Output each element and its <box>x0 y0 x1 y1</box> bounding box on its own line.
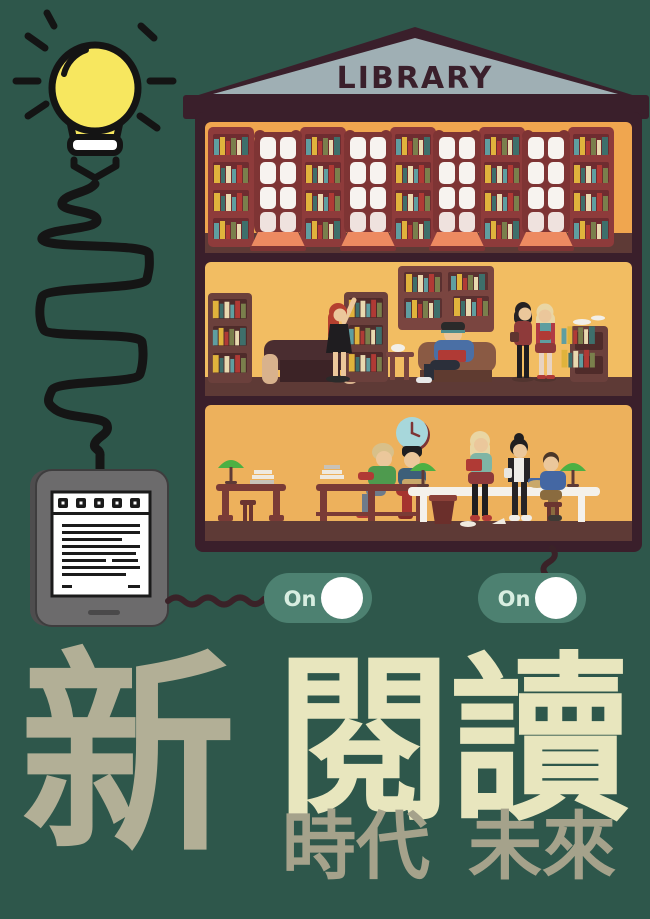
toggle-knob-icon[interactable] <box>264 573 372 623</box>
bulb-contact <box>74 160 116 178</box>
bulb-base <box>70 137 120 153</box>
arched-window <box>340 130 396 251</box>
power-cord-bulb-to-ereader <box>40 184 150 470</box>
subheadline-second: 未來 <box>468 804 616 890</box>
toolbar-button-icon[interactable] <box>76 498 86 508</box>
bookshelf <box>300 127 346 247</box>
toggle-switch-2[interactable]: On <box>478 573 586 623</box>
bookshelf <box>208 127 254 247</box>
lightbulb-icon <box>16 13 173 178</box>
toggle-1-label: On <box>284 587 317 611</box>
ereader-icon <box>30 470 168 626</box>
bulb-glass <box>52 45 138 131</box>
floor-top-stacks <box>205 122 632 253</box>
arched-window <box>429 130 485 251</box>
bottom-floor-floor <box>205 521 632 541</box>
bookshelf <box>568 127 614 247</box>
poster-canvas: LIBRARY <box>0 0 650 919</box>
toggle-switch-1[interactable]: On <box>264 573 372 623</box>
toolbar-button-icon[interactable] <box>112 498 122 508</box>
toolbar-button-icon[interactable] <box>58 498 68 508</box>
toggle-knob-icon[interactable] <box>478 573 586 623</box>
floor-browsing <box>205 262 632 396</box>
toggle-2-label: On <box>498 587 531 611</box>
library-building: LIBRARY <box>183 27 649 552</box>
arched-window <box>250 130 306 251</box>
subheadline-first: 時代 <box>282 804 430 890</box>
floor-reading-room <box>205 405 632 541</box>
cord-ereader-to-toggle <box>168 598 264 605</box>
subheadline: 時代未來 <box>282 810 616 884</box>
cord-library-to-toggle <box>543 548 554 576</box>
toolbar-button-icon[interactable] <box>94 498 104 508</box>
toolbar-button-icon[interactable] <box>130 498 140 508</box>
arched-window <box>518 130 574 251</box>
headline-primary: 新 <box>20 648 236 864</box>
library-sign: LIBRARY <box>337 61 494 96</box>
bookshelf <box>208 293 252 383</box>
bookshelf <box>390 127 436 247</box>
bookshelf <box>479 127 525 247</box>
ereader-home-button[interactable] <box>88 610 120 615</box>
